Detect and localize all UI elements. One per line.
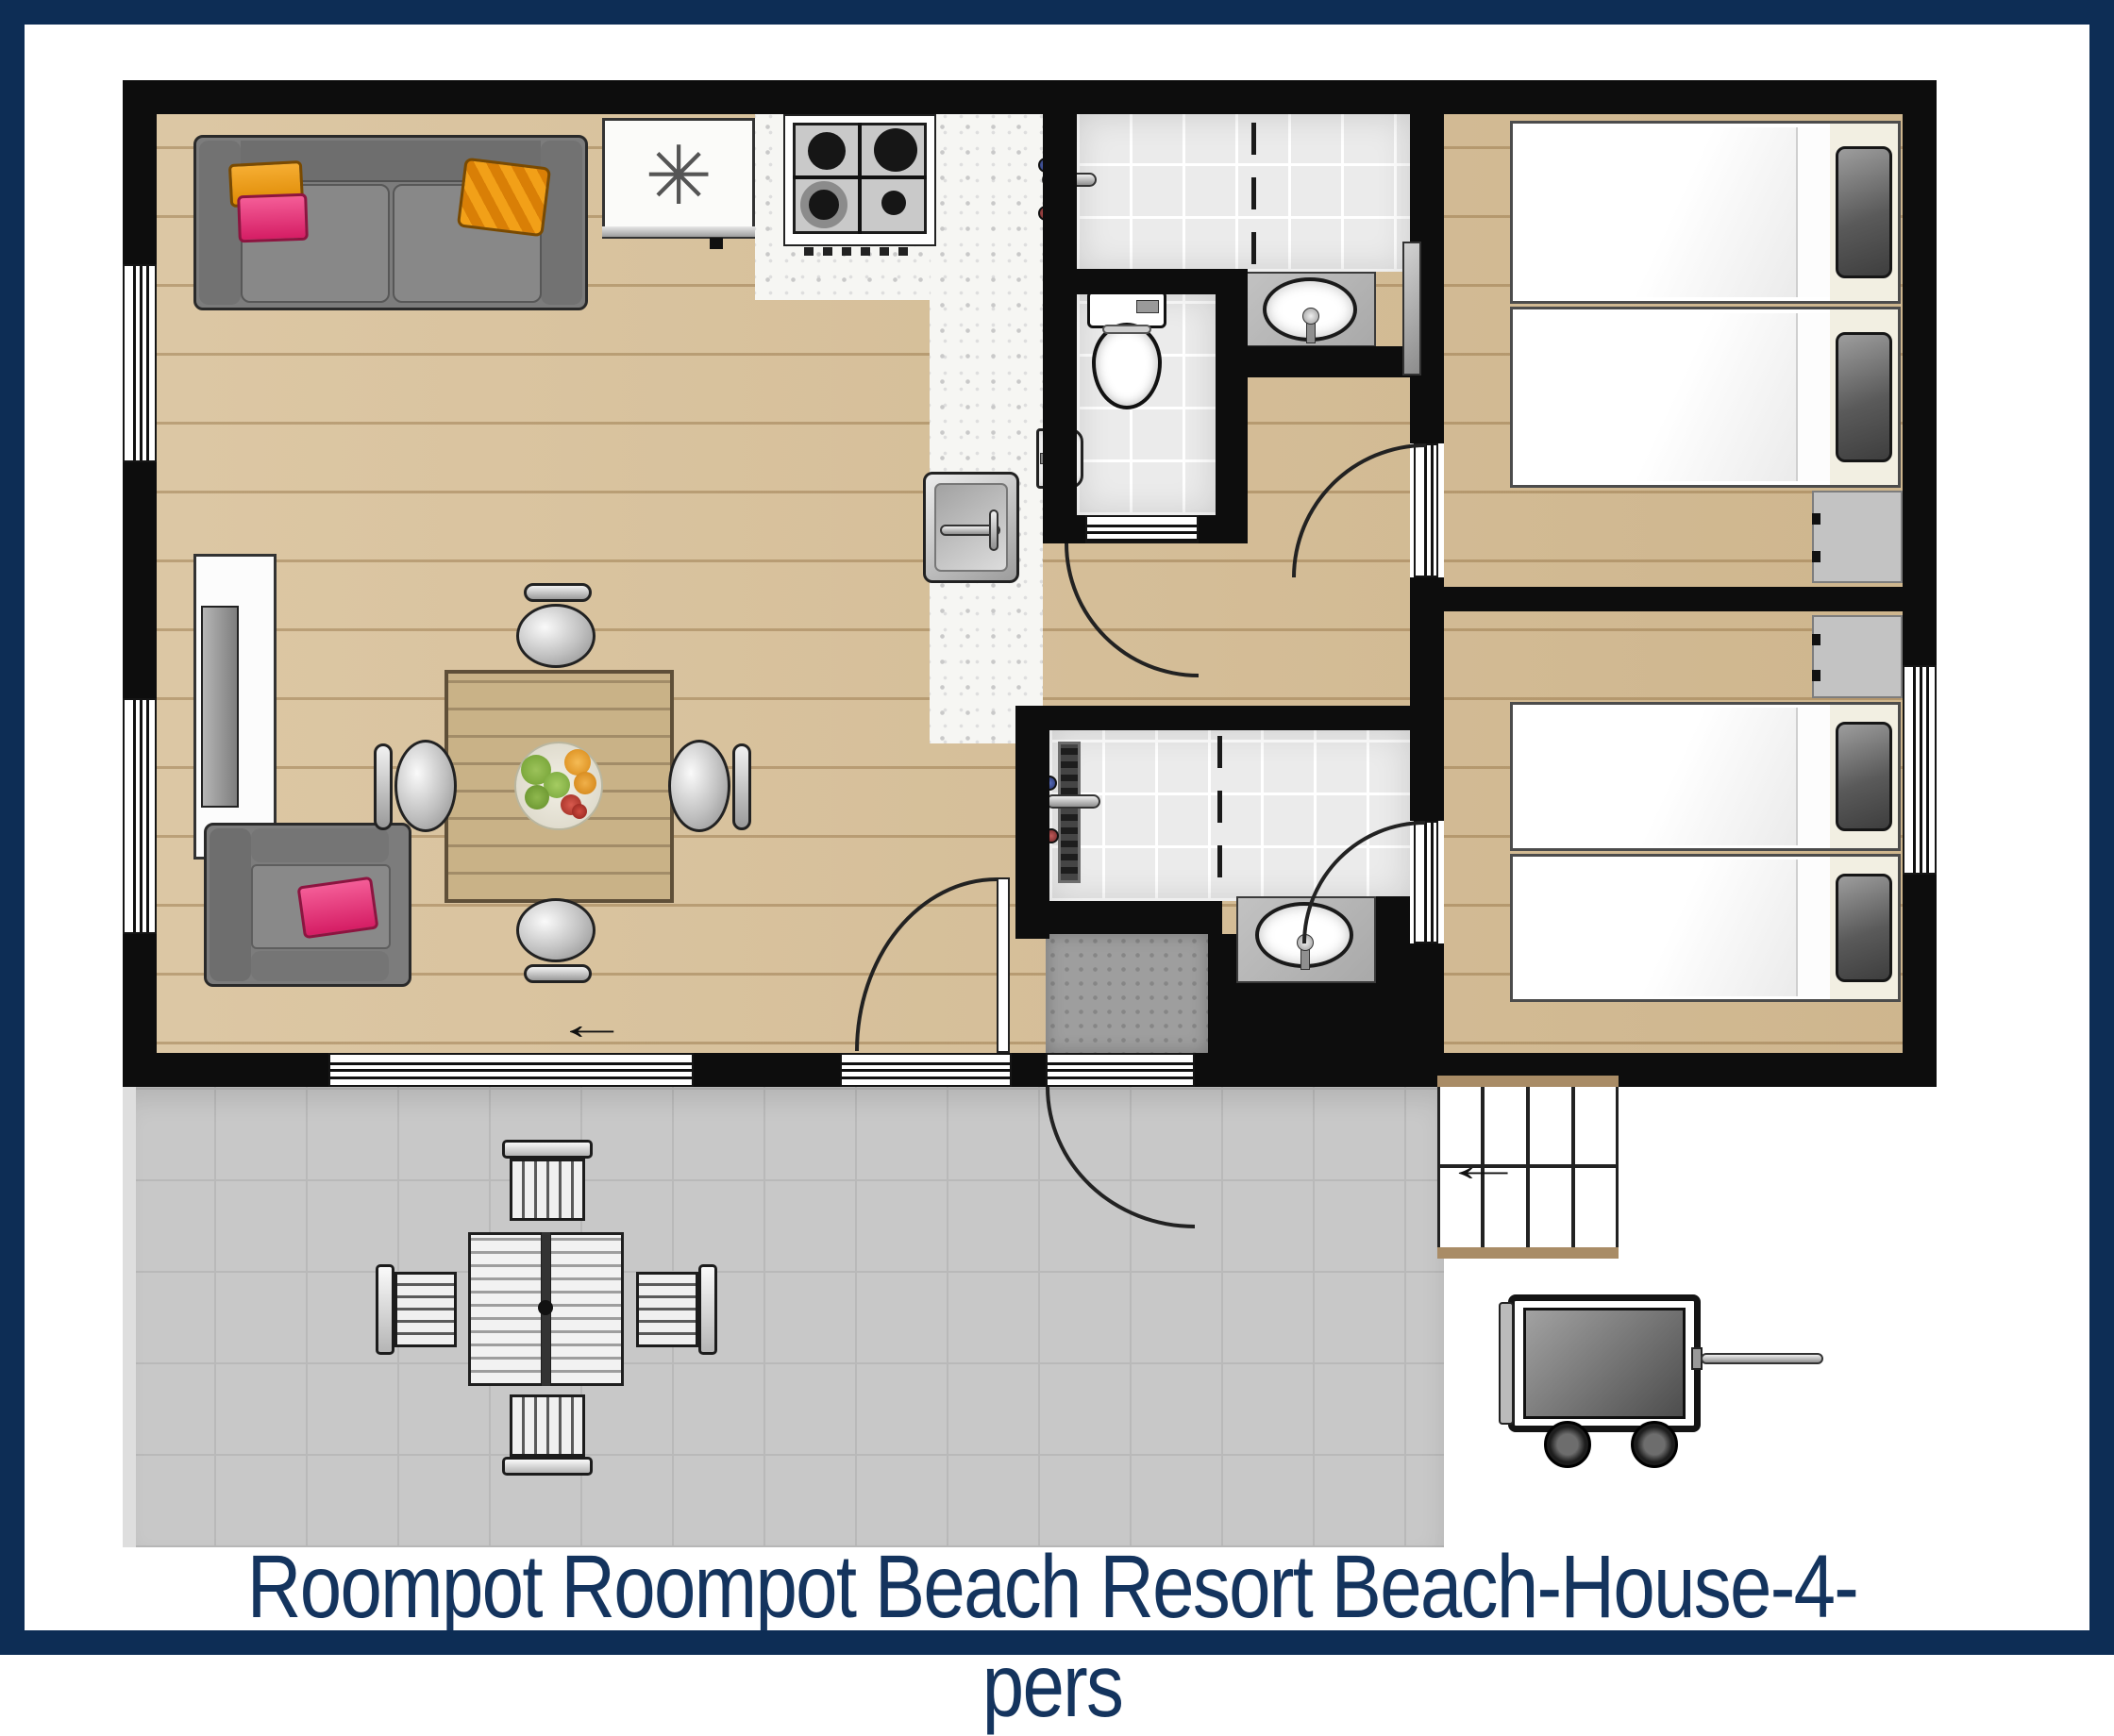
fruit-green [525,785,549,810]
bed-fold [1796,708,1834,845]
fridge-shelf [602,226,755,237]
kitchen-faucet-handle [989,509,998,551]
beach-wagon-body [1523,1308,1686,1419]
shower-partition-dashed [1251,123,1256,266]
wc-door [1085,515,1199,543]
bed-duvet [1513,313,1798,481]
floorplan-page: { "title": "Roompot Roompot Beach Resort… [0,0,2114,1655]
kitchen-counter-column [930,114,1043,743]
shower-2-partition-dashed [1217,736,1222,896]
bed-fold [1796,127,1834,297]
outdoor-chair [510,1159,585,1221]
toilet-seat-line [1102,325,1151,334]
dining-chair-back [374,743,393,830]
hob-grid-h [793,175,927,179]
fruit-red [572,804,587,819]
sliding-door [328,1053,694,1087]
outdoor-table-half [468,1232,544,1386]
wall-bathroom1-west [1043,114,1077,543]
bed-pillow [1836,722,1892,831]
bed-single [1510,854,1901,1002]
burner [808,132,846,170]
outdoor-chair [394,1272,457,1347]
outdoor-chair-back [376,1264,394,1355]
stairs-arrow-icon: ← [1442,1143,1524,1187]
wall-right [1903,80,1937,1087]
wardrobe [1812,615,1903,698]
entry-door [1046,1053,1195,1087]
sliding-door-arrow-icon: ← [555,1002,629,1045]
bed-single [1510,702,1901,851]
terrace-edge [123,1087,136,1547]
wall-top [123,80,1937,114]
fridge-handle [710,238,723,249]
sofa-arm-right [541,141,582,305]
burner [874,128,917,172]
wardrobe [1812,491,1903,583]
freezer-icon: ✳ [645,129,713,224]
fruit-orange [574,772,596,794]
beach-wagon-wheel [1544,1421,1591,1468]
wall-bathroom2-north [1015,706,1410,730]
stairs-edge-bottom [1437,1247,1619,1259]
outdoor-chair [510,1394,585,1457]
outdoor-chair-back [502,1457,593,1476]
tv-screen [201,606,239,808]
bed-duvet [1513,860,1798,996]
dining-chair [394,740,457,832]
dining-chair [668,740,730,832]
washbasin-1-faucet-knob [1302,308,1319,325]
shower-handle-2 [1046,794,1100,809]
pillow-pink [237,193,309,243]
wall-bedroom-divider [1410,587,1937,611]
burner-ring [800,181,847,228]
wall-washbasin1-south [1232,346,1410,377]
wall-below-sink2 [1208,983,1410,1053]
terrace-door-leaf [997,877,1010,1053]
bed-single [1510,307,1901,488]
window [1903,665,1937,875]
armchair-arm-top [251,828,389,862]
beach-wagon-handle [1701,1353,1823,1364]
beach-wagon-sidebar [1499,1302,1514,1425]
shower-rail-2 [1058,742,1081,883]
dining-chair [516,898,596,962]
bed-single [1510,121,1901,304]
wall-wc-east [1216,269,1248,543]
dining-chair-back [524,583,592,602]
burner [881,191,906,215]
outdoor-chair [636,1272,698,1347]
wall-bathroom2-south [1015,901,1222,934]
bed-duvet [1513,708,1798,845]
dining-chair-back [732,743,751,830]
terrace [123,1087,1444,1547]
bed-pillow [1836,874,1892,982]
hob-knobs [804,247,915,256]
entry-mat [1046,934,1208,1053]
toilet-button [1136,300,1159,313]
dining-chair [516,604,596,668]
armchair-pillow-pink [296,876,378,940]
outdoor-table-umbrella-hole [538,1300,553,1315]
outdoor-table-half [548,1232,624,1386]
wall-left [123,80,157,1087]
mirror [1402,242,1421,376]
bed-fold [1796,860,1834,996]
outdoor-chair-back [698,1264,717,1355]
window [123,264,157,462]
bed-pillow [1836,332,1892,462]
beach-wagon-wheel [1631,1421,1678,1468]
pillow-orange-striped [457,158,551,238]
bathroom-1-shower-tiles [1077,114,1410,272]
stairs-edge-top [1437,1076,1619,1087]
bed-duvet [1513,127,1798,297]
bed-fold [1796,313,1834,481]
outdoor-chair-back [502,1140,593,1159]
page-title: Roompot Roompot Beach Resort Beach-House… [243,1538,1861,1736]
dining-chair-back [524,964,592,983]
armchair-arm-bottom [251,951,389,981]
bed-pillow [1836,146,1892,278]
terrace-door [840,1053,1012,1087]
window [123,698,157,934]
armchair-back [210,828,251,981]
fridge-freezer: ✳ [602,118,755,239]
